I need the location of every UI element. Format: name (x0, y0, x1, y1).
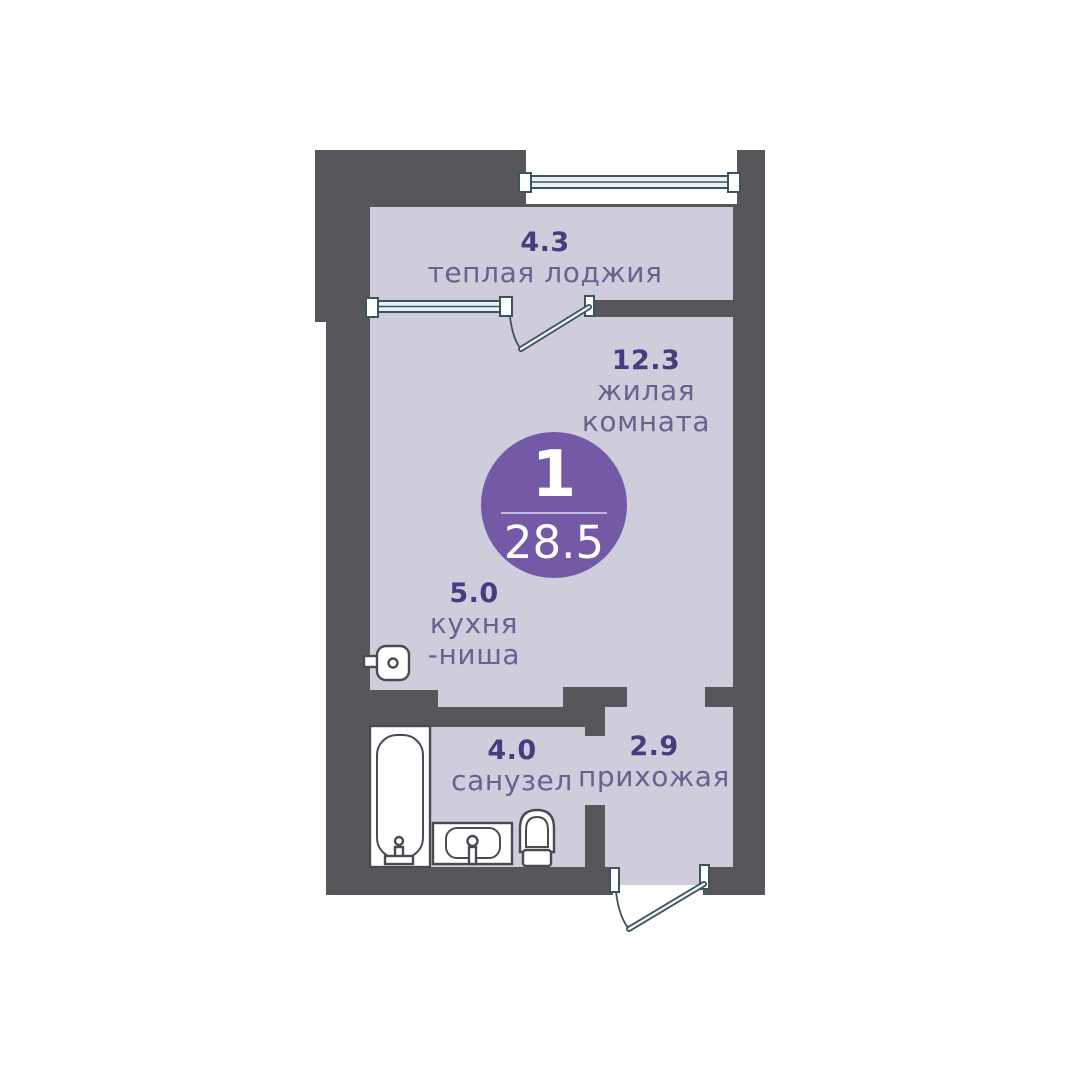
bathroom-label: 4.0 санузел (451, 735, 573, 797)
bathroom-hallway-wall (585, 805, 605, 867)
bathroom-name: санузел (451, 766, 573, 797)
badge-divider (501, 512, 607, 514)
apartment-summary-badge: 1 28.5 (481, 432, 627, 578)
living-room-name-1: жилая (582, 376, 710, 407)
hallway-name: прихожая (578, 762, 730, 793)
loggia-divider-wall (588, 300, 733, 317)
bathtub-icon (370, 726, 430, 867)
hallway-label: 2.9 прихожая (578, 731, 730, 793)
toilet-icon (520, 810, 554, 866)
kitchen-name-2: -ниша (428, 640, 520, 671)
floor-plan-page: 4.3 теплая лоджия 12.3 жилая комната 5.0… (0, 0, 1080, 1080)
hallway-area: 2.9 (578, 731, 730, 762)
bathroom-area: 4.0 (451, 735, 573, 766)
bathroom-sink-icon (433, 823, 512, 864)
loggia-name: теплая лоджия (427, 258, 662, 289)
living-room-area: 12.3 (582, 345, 710, 376)
total-area: 28.5 (504, 520, 604, 565)
living-room-name-2: комната (582, 407, 710, 438)
kitchen-label: 5.0 кухня -ниша (428, 578, 520, 671)
living-room-label: 12.3 жилая комната (582, 345, 710, 438)
loggia-area: 4.3 (427, 227, 662, 258)
kitchen-area: 5.0 (428, 578, 520, 609)
kitchen-name-1: кухня (428, 609, 520, 640)
loggia-label: 4.3 теплая лоджия (427, 227, 662, 289)
room-count: 1 (532, 447, 577, 505)
